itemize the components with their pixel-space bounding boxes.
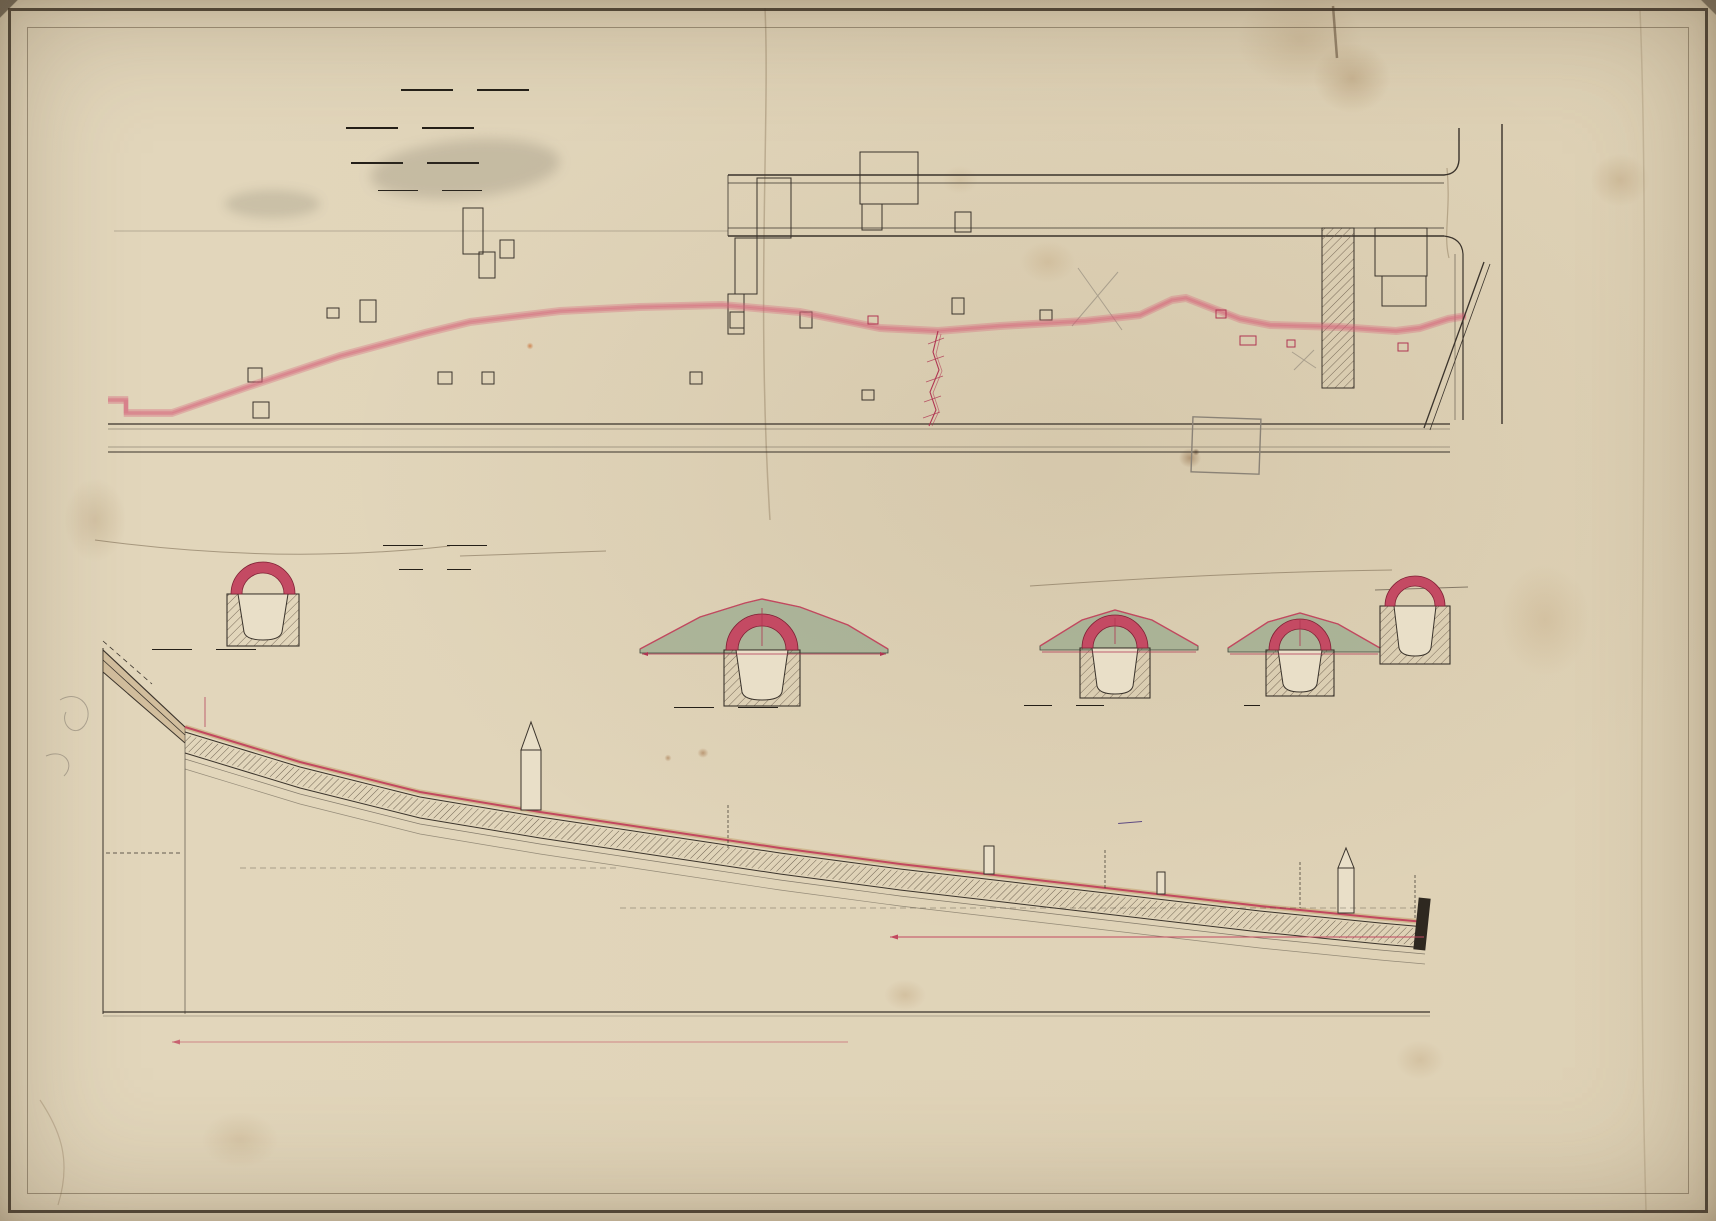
section-scale-dash xyxy=(447,569,471,570)
title-dash xyxy=(427,162,479,164)
section-a-drawing xyxy=(227,562,299,646)
cross-sections xyxy=(95,540,1468,706)
section-b-drawing xyxy=(640,599,888,706)
section-d-label-row xyxy=(1232,696,1272,714)
section-label-dash xyxy=(216,649,256,650)
profile-main-sewer-bar xyxy=(1413,898,1430,951)
section-a-label-row xyxy=(140,640,268,658)
plan-drain-line xyxy=(108,296,1466,426)
title-dash xyxy=(401,89,453,91)
scale-dash xyxy=(442,190,482,191)
section-label-dash xyxy=(1076,705,1104,706)
scale-horizontal-row xyxy=(284,204,304,220)
title-line-1 xyxy=(205,64,725,102)
title-line-3 xyxy=(150,143,680,174)
title-line-2 xyxy=(100,108,720,139)
section-b-label-row xyxy=(662,698,790,716)
drawing-sheet xyxy=(0,0,1716,1221)
scale-dash xyxy=(378,190,418,191)
section-label-dash xyxy=(1024,705,1052,706)
title-dash xyxy=(346,127,398,129)
section-d-drawing xyxy=(1228,613,1380,696)
scale-vertical-row xyxy=(302,225,336,241)
section-c-drawing xyxy=(1040,610,1198,698)
section-scale-dash xyxy=(447,545,487,546)
scale-heading-row xyxy=(300,181,560,199)
section-label-dash xyxy=(152,649,192,650)
title-dash xyxy=(351,162,403,164)
plan-main-sewer xyxy=(1424,262,1490,430)
section-label-dash xyxy=(674,707,714,708)
drawing-linework xyxy=(0,0,1716,1221)
section-scale-row2 xyxy=(330,560,540,578)
section-label-dash xyxy=(738,707,778,708)
title-dash xyxy=(477,89,529,91)
section-scale-dash xyxy=(399,569,423,570)
section-scale-row xyxy=(270,536,600,554)
pencil-square xyxy=(1191,417,1261,474)
section-c-label-row xyxy=(1012,696,1116,714)
section-label-dash xyxy=(1244,705,1260,706)
section-scale-dash xyxy=(383,545,423,546)
title-dash xyxy=(422,127,474,129)
